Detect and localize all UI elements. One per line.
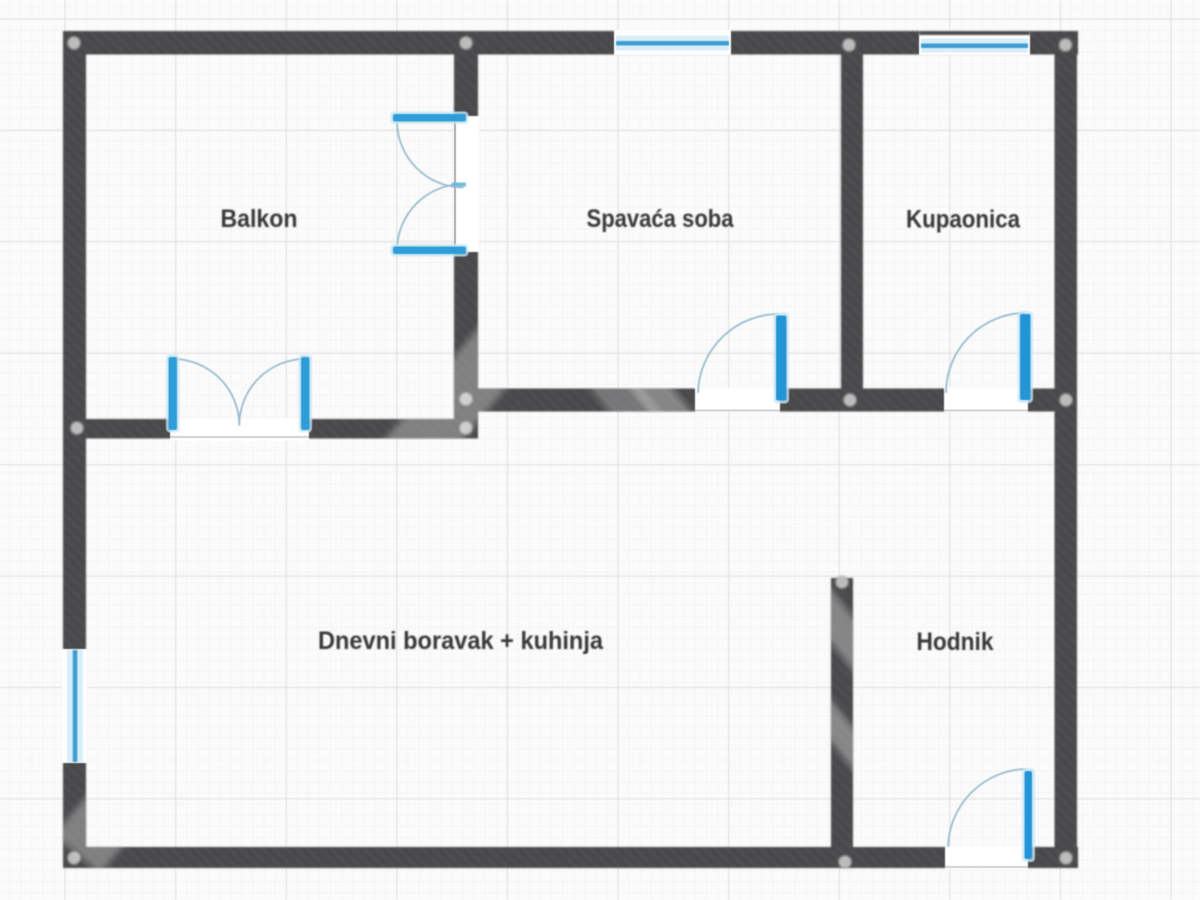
- svg-text:Hodnik: Hodnik: [917, 628, 994, 656]
- svg-text:Spavaća soba: Spavaća soba: [587, 205, 735, 233]
- svg-text:Kupaonica: Kupaonica: [906, 206, 1021, 234]
- svg-text:Dnevni boravak + kuhinja: Dnevni boravak + kuhinja: [318, 627, 604, 655]
- svg-text:Balkon: Balkon: [221, 205, 298, 233]
